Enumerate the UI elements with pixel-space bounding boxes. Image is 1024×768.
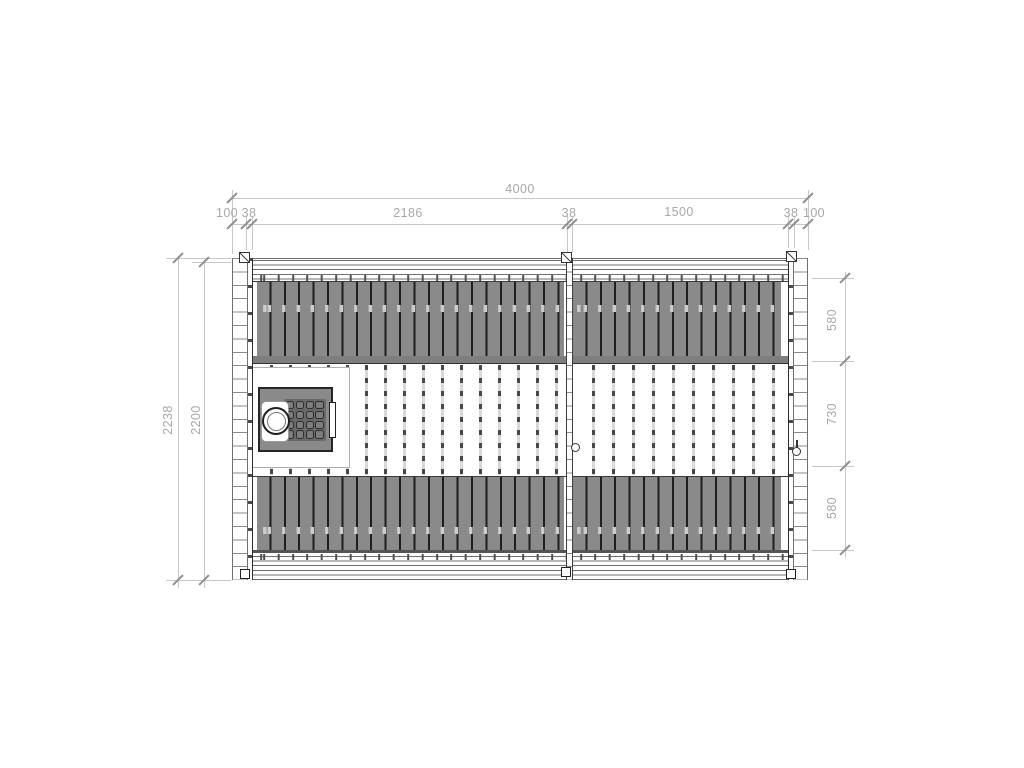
plan-drawing: 4000 100 38 2186 38 1500 38 100 2238 220… [0, 0, 1024, 768]
dim-label-wall-right: 38 [784, 207, 799, 219]
lower-bench-edge-line [252, 550, 788, 553]
chimney-inner-ring [267, 412, 286, 431]
dim-label-wall-left: 38 [242, 207, 257, 219]
corner-post-icon [786, 569, 796, 579]
heater-stone [315, 421, 323, 429]
upper-bench-support-marks [573, 305, 781, 312]
upper-bench-right [573, 282, 781, 356]
heater-door-hinge [329, 402, 336, 438]
door-handle-icon [792, 447, 801, 456]
floor-board-gap [672, 365, 675, 475]
heater-stone [296, 430, 304, 438]
dim-line [812, 361, 854, 362]
dim-line [178, 256, 179, 588]
floor-board-gap [403, 365, 406, 475]
heater-stone [315, 430, 323, 438]
floor-board-gap [517, 365, 520, 475]
dim-line [812, 550, 854, 551]
floor-board-gap [422, 365, 425, 475]
dim-line [192, 262, 231, 263]
heater-stone [296, 421, 304, 429]
right-wall-staves [794, 258, 808, 580]
floor-board-gap [592, 365, 595, 475]
heater-stone [315, 401, 323, 409]
heater-stone [296, 411, 304, 419]
heater-stone [296, 401, 304, 409]
heater-stone [306, 411, 314, 419]
dim-label-overhang-left: 100 [216, 207, 238, 219]
dim-line [812, 466, 854, 467]
upper-bench-edge-band [252, 356, 788, 364]
floor-board-gap [536, 365, 539, 475]
floor-board-gap [652, 365, 655, 475]
floor-board-gap [555, 365, 558, 475]
dim-label-total-depth: 2238 [162, 405, 174, 434]
left-wall-staves [232, 258, 247, 580]
corner-post-icon [786, 251, 797, 262]
lower-bench-right [573, 477, 781, 550]
corner-post-icon [561, 567, 571, 577]
floor-board-gap [365, 365, 368, 475]
dim-line [232, 224, 808, 225]
upper-wall-board-ends [252, 275, 788, 281]
floor-board-gap [460, 365, 463, 475]
upper-bench-left [257, 282, 564, 356]
floor-board-gap [479, 365, 482, 475]
dim-label-partition: 38 [562, 207, 577, 219]
door-handle-stem [796, 440, 798, 448]
dim-label-total-width: 4000 [505, 183, 534, 195]
corner-post-icon [239, 252, 250, 263]
lower-bench-left [257, 477, 564, 550]
heater-stone [306, 401, 314, 409]
dim-label-floor-width: 730 [826, 403, 838, 425]
door-handle-icon [571, 443, 580, 452]
floor-board-gap [632, 365, 635, 475]
dim-label-overhang-right: 100 [803, 207, 825, 219]
dim-line [812, 278, 854, 279]
dim-line [204, 260, 205, 588]
lower-bench-support-marks [573, 527, 781, 534]
dim-line [845, 272, 846, 558]
lower-wall-board-ends [252, 554, 788, 560]
heater-stone [315, 411, 323, 419]
floor-board-gap [732, 365, 735, 475]
dim-label-bench-depth-top: 580 [826, 309, 838, 331]
dim-line [232, 198, 808, 199]
heater-stone [306, 421, 314, 429]
heater-stone [306, 430, 314, 438]
floor-board-gap [612, 365, 615, 475]
partition-wall [566, 258, 573, 580]
floor-board-gap [384, 365, 387, 475]
floor-board-gap [441, 365, 444, 475]
dim-label-front-room-width: 1500 [664, 206, 693, 218]
dim-label-sauna-room-width: 2186 [393, 207, 422, 219]
corner-post-icon [561, 252, 572, 263]
floor-board-gap [498, 365, 501, 475]
floor-board-gap [712, 365, 715, 475]
floor-board-gap [692, 365, 695, 475]
dim-label-bench-depth-bottom: 580 [826, 497, 838, 519]
upper-bench-support-marks [257, 305, 564, 312]
dim-label-inner-depth: 2200 [190, 405, 202, 434]
left-wall-inner-face [252, 258, 253, 580]
floor-board-gap [752, 365, 755, 475]
corner-post-icon [240, 569, 250, 579]
lower-bench-support-marks [257, 527, 564, 534]
floor-board-gap [772, 365, 775, 475]
